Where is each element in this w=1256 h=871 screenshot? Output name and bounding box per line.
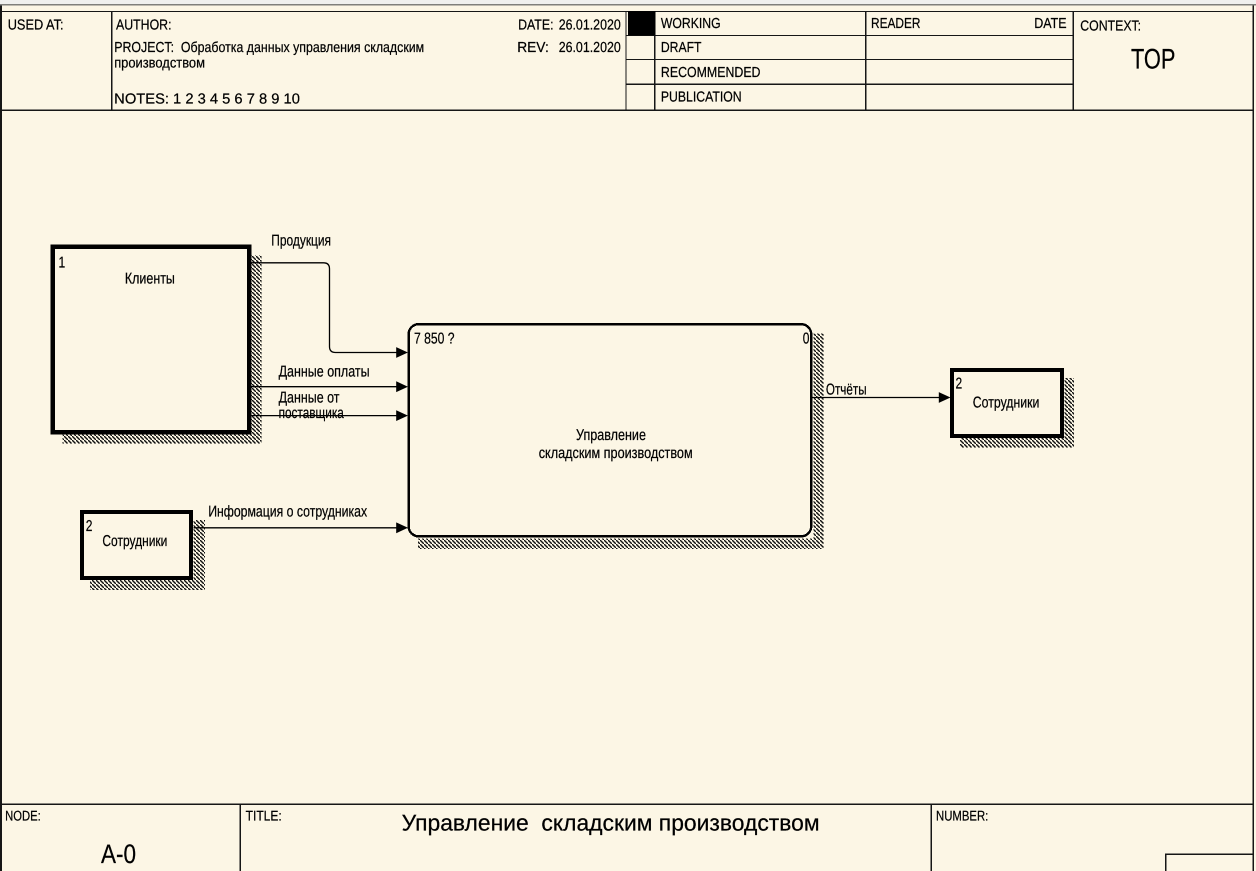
- svg-text:PUBLICATION: PUBLICATION: [661, 89, 742, 105]
- svg-text:A-0: A-0: [101, 839, 136, 869]
- svg-text:DATE: DATE: [1034, 16, 1067, 32]
- svg-text:Данные от: Данные от: [279, 389, 340, 406]
- svg-text:READER: READER: [871, 16, 921, 32]
- svg-text:AUTHOR:: AUTHOR:: [116, 18, 172, 34]
- svg-text:WORKING: WORKING: [661, 16, 721, 32]
- svg-text:CONTEXT:: CONTEXT:: [1080, 18, 1141, 34]
- svg-text:производством: производством: [114, 56, 205, 72]
- svg-text:PROJECT: Обработка данных упр: PROJECT: Обработка данных управления скл…: [114, 40, 424, 56]
- svg-text:складским производством: складским производством: [539, 445, 693, 462]
- svg-text:Данные оплаты: Данные оплаты: [279, 364, 370, 381]
- svg-text:TOP: TOP: [1131, 43, 1176, 75]
- svg-text:USED AT:: USED AT:: [8, 18, 64, 34]
- svg-text:Сотрудники: Сотрудники: [973, 394, 1040, 411]
- svg-text:26.01.2020: 26.01.2020: [559, 17, 621, 33]
- svg-text:2: 2: [956, 375, 963, 392]
- svg-text:0: 0: [803, 331, 810, 348]
- svg-text:Клиенты: Клиенты: [125, 271, 175, 288]
- svg-text:RECOMMENDED: RECOMMENDED: [661, 65, 761, 81]
- svg-text:Отчёты: Отчёты: [826, 382, 867, 399]
- svg-text:DATE:: DATE:: [518, 17, 553, 33]
- svg-text:26.01.2020: 26.01.2020: [559, 40, 621, 56]
- svg-text:1: 1: [59, 254, 66, 271]
- svg-text:TITLE:: TITLE:: [246, 808, 282, 824]
- svg-text:Управление складским производ: Управление складским производством: [402, 810, 820, 836]
- svg-text:Управление: Управление: [576, 427, 646, 444]
- svg-text:NUMBER:: NUMBER:: [936, 808, 988, 824]
- svg-text:REV:: REV:: [517, 40, 549, 56]
- svg-text:NODE:: NODE:: [5, 808, 41, 824]
- svg-text:NOTES: 1 2 3 4 5 6 7 8 9 10: NOTES: 1 2 3 4 5 6 7 8 9 10: [114, 92, 300, 108]
- svg-text:2: 2: [86, 518, 93, 535]
- svg-text:поставщика: поставщика: [279, 405, 344, 422]
- svg-text:7 850 ?: 7 850 ?: [414, 331, 455, 348]
- svg-text:Сотрудники: Сотрудники: [102, 533, 167, 550]
- svg-text:Продукция: Продукция: [271, 233, 331, 250]
- svg-text:Информация о сотрудниках: Информация о сотрудниках: [208, 504, 367, 521]
- svg-text:DRAFT: DRAFT: [661, 40, 702, 56]
